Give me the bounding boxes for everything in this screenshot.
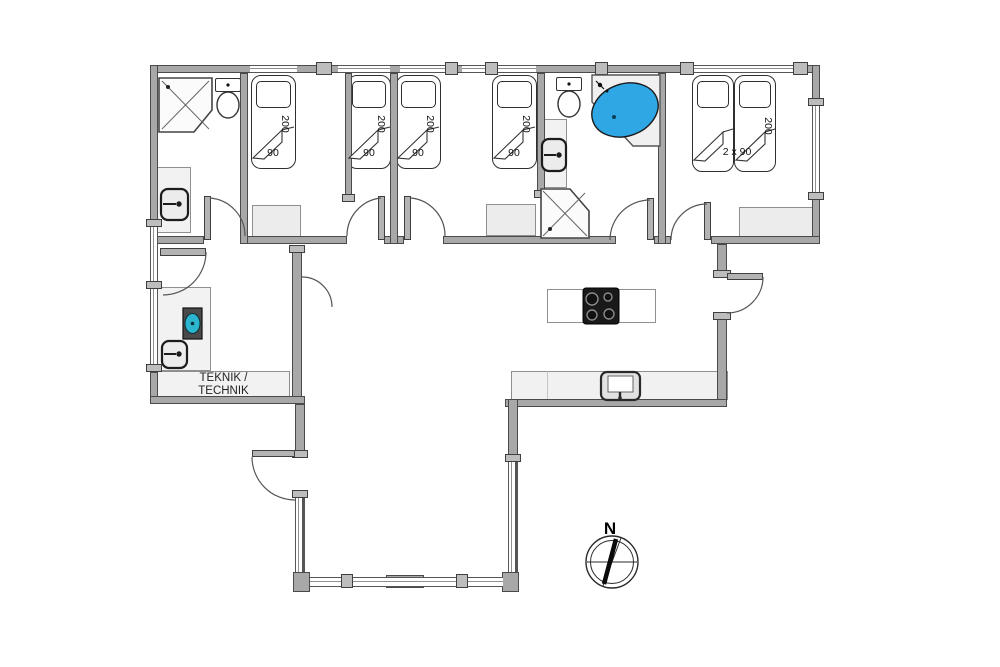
kitchen-counter <box>511 371 728 400</box>
bathtub-water <box>584 74 666 146</box>
window-lower-left <box>295 498 305 572</box>
wall-lower-left-upper <box>295 404 305 452</box>
wall-living-right-lower <box>717 314 727 407</box>
bed4-length-label: 200 <box>520 109 532 139</box>
wall-band-bottom-a <box>150 236 204 244</box>
double-bed-length-label: 200 <box>762 111 774 141</box>
door-frame-cap <box>713 312 731 320</box>
toilet-tank-bath2 <box>556 77 582 91</box>
door-leaf-bath2 <box>647 198 654 240</box>
bed1-width-label: 90 <box>259 147 287 159</box>
shower-head-icon <box>166 85 170 89</box>
wall-bedroom1-bedroom2 <box>390 73 398 244</box>
window-cap <box>146 281 162 289</box>
window-top-bedroom2a <box>400 65 447 73</box>
wall-end-cap <box>342 194 355 202</box>
kitchen-counter-seam <box>547 371 548 400</box>
wardrobe-bedroom2 <box>486 204 536 236</box>
shower-bath1 <box>159 78 212 132</box>
window-cap <box>316 62 332 75</box>
wardrobe-master-bedroom <box>739 207 813 237</box>
door-arc-bedroom2 <box>411 198 445 236</box>
door-leaf-terrace <box>727 273 763 280</box>
window-lower-right <box>508 462 518 572</box>
door-arc-entrance <box>252 457 295 500</box>
door-leaf-teknik <box>160 248 206 256</box>
wall-end-cap <box>534 190 548 198</box>
wall-bath1-bedroom1 <box>240 73 248 244</box>
window-cap <box>505 454 521 462</box>
door-leaf-bedroom2 <box>404 196 411 240</box>
wall-lower-left-corner <box>293 572 310 592</box>
pillow <box>497 81 532 108</box>
bed3-length-label: 200 <box>424 109 436 139</box>
window-cap <box>808 98 824 106</box>
wall-end-cap <box>289 245 305 253</box>
door-arc-master <box>671 204 707 240</box>
bed4-width-label: 90 <box>500 147 528 159</box>
compass-north-label: N <box>600 519 620 539</box>
tub-faucet-icon <box>598 83 602 87</box>
toilet-tank-bath1 <box>215 78 241 92</box>
window-cap <box>808 192 824 200</box>
wall-right-master-upper <box>812 65 820 102</box>
teknik-room-label: TEKNIK / TECHNIK <box>157 371 290 399</box>
door-leaf-bedroom1 <box>378 196 385 240</box>
wall-band-bottom-f <box>711 236 820 244</box>
window-cap <box>146 219 162 227</box>
window-left-hall-1 <box>150 225 158 283</box>
bed1-length-label: 200 <box>279 109 291 139</box>
wall-band-bottom-d <box>443 236 616 244</box>
window-cap <box>595 62 608 75</box>
window-top-bedroom1a <box>250 65 297 73</box>
wall-kitchen-bottom <box>505 399 727 407</box>
wall-bedroom2-alcove <box>537 73 545 192</box>
wardrobe-bedroom1 <box>252 205 301 237</box>
wall-teknik-bottom <box>150 396 305 404</box>
bed2-width-label: 90 <box>355 147 383 159</box>
window-master-right <box>812 102 820 196</box>
door-arc-terrace <box>727 277 763 313</box>
pillow <box>739 81 771 108</box>
pillow <box>352 81 386 108</box>
door-frame-cap <box>292 490 308 498</box>
window-top-master <box>694 65 794 73</box>
window-lower-bottom <box>310 577 503 587</box>
door-leaf-master <box>704 202 711 240</box>
door-leaf-bath1 <box>204 196 211 240</box>
window-top-bedroom1b <box>338 65 390 73</box>
shower-bath2 <box>541 189 589 238</box>
window-cap <box>485 62 498 75</box>
vanity-cabinet-bath1 <box>157 167 191 233</box>
teknik-counter <box>157 287 211 371</box>
window-cap <box>146 364 162 372</box>
door-leaf-entrance <box>252 450 295 457</box>
window-cap <box>445 62 458 75</box>
pillow <box>256 81 291 108</box>
teknik-label-line1: TEKNIK / <box>200 372 248 385</box>
floor-plan: TEKNIK / TECHNIK <box>0 0 1000 667</box>
corner-bathtub <box>584 74 666 146</box>
bed3-width-label: 90 <box>404 147 432 159</box>
bed2-length-label: 200 <box>375 109 387 139</box>
pillow <box>401 81 436 108</box>
door-arc-bedroom1 <box>347 198 381 236</box>
shower-head-icon <box>548 227 552 231</box>
window-cap <box>341 574 353 588</box>
wall-left-upper <box>150 65 158 225</box>
compass <box>586 536 638 588</box>
window-cap <box>793 62 808 75</box>
wall-lower-right-upper <box>508 399 518 456</box>
kitchen-island <box>547 289 656 323</box>
wall-lower-right-corner <box>502 572 519 592</box>
window-cap <box>680 62 694 75</box>
double-bed-width-label: 2 x 90 <box>707 146 767 158</box>
wall-teknik-right <box>292 248 302 404</box>
wall-bedroom1-alcove <box>345 73 352 196</box>
compass-needle <box>604 539 616 584</box>
wall-bath2-master <box>658 73 666 244</box>
door-arc-bath2 <box>610 200 650 240</box>
window-left-teknik <box>150 289 158 366</box>
wall-band-bottom-b <box>245 236 347 244</box>
door-arc-hall <box>302 277 332 307</box>
window-cap <box>456 574 468 588</box>
window-top-bedroom2b <box>462 65 536 73</box>
pillow <box>697 81 729 108</box>
